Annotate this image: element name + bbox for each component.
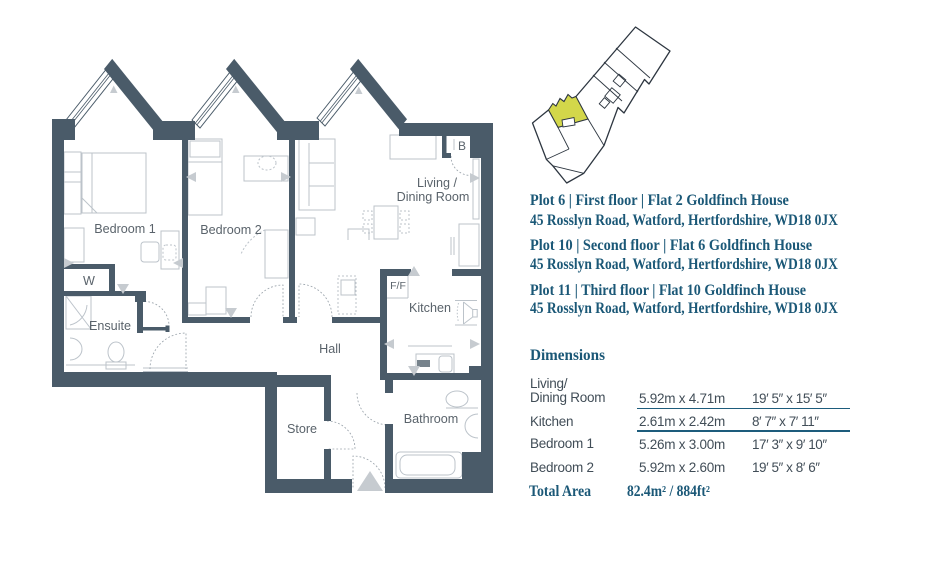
svg-text:Living /: Living / bbox=[417, 176, 457, 190]
svg-text:W: W bbox=[83, 274, 95, 288]
svg-text:Bedroom 1: Bedroom 1 bbox=[94, 222, 156, 236]
svg-text:Store: Store bbox=[287, 422, 317, 436]
svg-text:Hall: Hall bbox=[319, 342, 341, 356]
svg-text:Bedroom 2: Bedroom 2 bbox=[200, 223, 262, 237]
svg-text:F/F: F/F bbox=[390, 280, 406, 292]
svg-text:B: B bbox=[458, 139, 466, 153]
svg-text:Ensuite: Ensuite bbox=[89, 319, 131, 333]
svg-text:Dining Room: Dining Room bbox=[397, 190, 470, 204]
svg-text:Bathroom: Bathroom bbox=[404, 412, 459, 426]
svg-text:Kitchen: Kitchen bbox=[409, 301, 451, 315]
